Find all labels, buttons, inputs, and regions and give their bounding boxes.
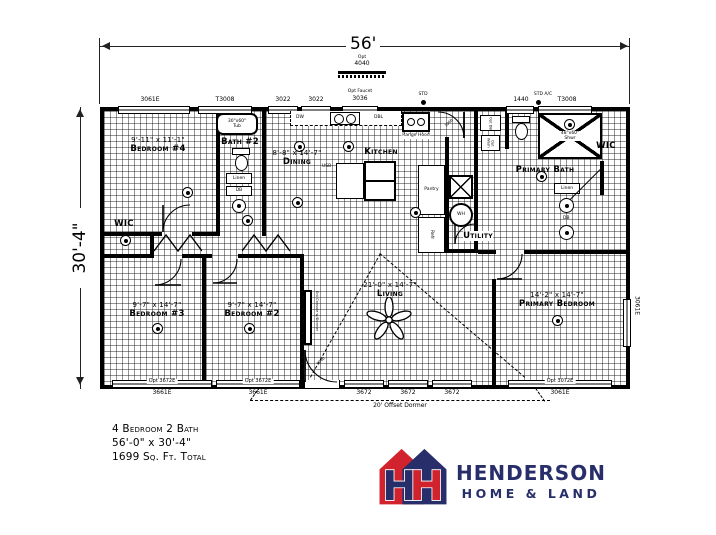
- window: [506, 106, 534, 114]
- room-dims: 9'-11" x 11'-1": [130, 136, 185, 144]
- ent-console-label: Ent Console w/Dormer: [314, 291, 318, 331]
- window-size-label: 3672: [444, 390, 459, 396]
- toilet-icon: [232, 148, 250, 155]
- bifold-door-icon: [242, 234, 290, 252]
- room-name: Bedroom #3: [129, 309, 184, 319]
- furnace-label: Furn: [442, 177, 447, 187]
- room-name: Living: [363, 289, 417, 299]
- window: [118, 106, 190, 114]
- wall: [104, 254, 154, 258]
- std-marker-icon: [421, 100, 426, 105]
- light-fixture-icon: [343, 141, 354, 152]
- room-name: Utility: [463, 231, 493, 241]
- wall: [202, 254, 206, 385]
- linen-cabinet: Linen: [226, 173, 252, 184]
- opt-window-ticks-icon: [338, 75, 386, 78]
- exterior-door-arc-icon: [437, 111, 465, 139]
- light-fixture-icon: [410, 207, 421, 218]
- opt-window-label: Opt 3672E: [147, 379, 178, 384]
- room-dims: 9'-7" x 14'-7": [129, 301, 184, 309]
- light-fixture-icon: [152, 323, 163, 334]
- room-dining: 8'-8" x 14'-7" Dining: [272, 149, 321, 167]
- dim-arrow-up-icon: [76, 105, 84, 117]
- kitchen-island: [364, 161, 396, 201]
- door-arc-icon: [154, 258, 182, 286]
- window-size-label: 3061E: [633, 296, 639, 315]
- window: [388, 380, 428, 388]
- light-fixture-icon: [242, 215, 253, 226]
- logo-monogram: H: [410, 462, 444, 508]
- opt-window-size-label: 4040: [354, 61, 369, 67]
- room-kitchen: Kitchen: [364, 147, 398, 157]
- db-cabinet: DB: [226, 186, 252, 196]
- dim-arrow-right-icon: [620, 42, 632, 50]
- pantry-cabinet: Pantry: [418, 165, 445, 215]
- bifold-door-icon: [154, 234, 202, 252]
- room-wic-right: WIC: [596, 141, 616, 151]
- light-fixture-icon: [559, 198, 574, 213]
- floor-plan-page: 56' 30'-4" Opt 4040 3061E T3008 3022 302…: [0, 0, 716, 535]
- door-arc-icon: [162, 204, 191, 233]
- top-dimension-label: 56': [346, 34, 380, 54]
- room-bath2: Bath #2: [221, 137, 259, 147]
- toilet-icon: [235, 155, 248, 171]
- std-ac-label: STD A/C: [534, 93, 552, 98]
- room-wic-left: WIC: [114, 219, 134, 229]
- light-fixture-icon: [120, 235, 131, 246]
- range-icon: [402, 112, 430, 132]
- room-bedroom4: 9'-11" x 11'-1" Bedroom #4: [130, 136, 185, 154]
- door-arc-icon: [212, 258, 238, 284]
- room-name: Kitchen: [364, 147, 398, 157]
- light-fixture-icon: [244, 323, 255, 334]
- wall: [262, 111, 266, 236]
- pantry-label: Pantry: [424, 187, 438, 192]
- linen-label: Linen: [233, 176, 245, 181]
- logo-brand-name: HENDERSON: [456, 461, 606, 485]
- wall: [505, 111, 509, 149]
- plan-summary: 4 Bedroom 2 Bath 56'-0" x 30'-4" 1699 Sq…: [112, 423, 206, 465]
- window: [432, 380, 472, 388]
- room-name: WIC: [596, 141, 616, 151]
- opt-wash-box: Opt Wash: [481, 135, 500, 151]
- room-primary-bath: Primary Bath: [516, 165, 575, 175]
- room-dims: 9'-7" x 14'-7": [224, 301, 279, 309]
- light-fixture-icon: [232, 199, 246, 213]
- summary-sqft: 1699 Sq. Ft. Total: [112, 451, 206, 465]
- room-dims: 21'-0" x 14'-7": [363, 281, 417, 289]
- dim-arrow-down-icon: [76, 377, 84, 389]
- light-fixture-icon: [182, 187, 193, 198]
- kitchen-sink-icon: [330, 112, 360, 125]
- room-utility: Utility: [463, 231, 493, 241]
- refrigerator: Refr: [418, 217, 445, 253]
- wh-label: WH: [457, 212, 465, 217]
- std-label: STD: [418, 93, 427, 98]
- light-fixture-icon: [552, 315, 563, 326]
- dim-arrow-left-icon: [98, 42, 110, 50]
- window-size-label: 3036: [352, 96, 367, 102]
- window-size-label: 3022: [275, 97, 290, 103]
- tub-label: Tub: [233, 124, 241, 129]
- opt-window-bar-icon: [338, 71, 386, 74]
- room-dims: 8'-8" x 14'-7": [272, 149, 321, 157]
- ceiling-fan-icon: [366, 297, 412, 343]
- wall: [492, 279, 496, 385]
- opt-db-box: Opt DB: [480, 115, 501, 131]
- window-size-label: 3661E: [152, 390, 171, 396]
- summary-beds-baths: 4 Bedroom 2 Bath: [112, 423, 206, 437]
- room-living: 21'-0" x 14'-7" Living: [363, 281, 417, 299]
- summary-size: 56'-0" x 30'-4": [112, 437, 206, 451]
- room-name: Bedroom #2: [224, 309, 279, 319]
- dbl-sink-label: DBL: [374, 116, 383, 121]
- room-primary-bedroom: 14'-2" x 14'-7" Primary Bedroom: [519, 291, 595, 309]
- henderson-logo-icon: H H: [378, 440, 448, 508]
- wall: [524, 250, 626, 254]
- std-ac-marker-icon: [536, 100, 541, 105]
- window-size-label: T3008: [558, 97, 577, 103]
- door-arc-icon: [496, 253, 523, 280]
- room-name: Primary Bedroom: [519, 299, 595, 309]
- room-bedroom2: 9'-7" x 14'-7" Bedroom #2: [224, 301, 279, 319]
- wall: [238, 254, 300, 258]
- ent-console: [304, 290, 312, 345]
- window: [623, 299, 631, 347]
- window-size-label: 3022: [308, 97, 323, 103]
- logo-tagline: HOME & LAND: [456, 486, 606, 501]
- shower-light-icon: [564, 119, 575, 130]
- room-dims: 14'-2" x 14'-7": [519, 291, 595, 299]
- window-size-label: 1440: [513, 97, 528, 103]
- wall: [478, 250, 496, 254]
- dormer-label: 20' Offset Dormer: [373, 403, 427, 409]
- linen-label: Linen: [561, 186, 573, 191]
- window-size-label: 3061E: [140, 97, 159, 103]
- floor-plan: Opt 3672E Opt 3672E Opt 3072E 9'-11" x 1…: [100, 107, 630, 389]
- toilet-icon: [515, 123, 528, 140]
- window-size-label: 3672: [356, 390, 371, 396]
- toilet-icon: [512, 116, 530, 123]
- opt-window-label: Opt 3672E: [243, 379, 274, 384]
- room-name: Bath #2: [221, 137, 259, 147]
- window-size-label: 3661E: [248, 390, 267, 396]
- dormer-baseline: [250, 400, 550, 401]
- refr-label: Refr: [429, 230, 434, 239]
- dishwasher-label: DW: [296, 116, 304, 121]
- usb-label: USB: [322, 165, 331, 170]
- wall: [600, 161, 604, 195]
- opt-window-label: Opt 3072E: [545, 379, 576, 384]
- db-label: DB: [236, 188, 243, 193]
- window-size-label: T3008: [216, 97, 235, 103]
- tub-icon: 30"x60" Tub: [216, 113, 258, 135]
- light-fixture-icon: [559, 225, 574, 240]
- island-table: [336, 163, 364, 199]
- room-name: Bedroom #4: [130, 144, 185, 154]
- furnace-icon: [449, 175, 473, 199]
- opt-db-label: Opt DB: [488, 117, 492, 130]
- front-door-arc-icon: [304, 349, 338, 383]
- room-name: Dining: [272, 157, 321, 167]
- db-label: DB: [563, 217, 570, 222]
- room-bedroom3: 9'-7" x 14'-7" Bedroom #3: [129, 301, 184, 319]
- window: [344, 380, 384, 388]
- wall: [182, 254, 212, 258]
- window-size-label: 3672: [400, 390, 415, 396]
- left-dimension-label: 30'-4": [70, 208, 90, 288]
- range-hood-label: Range Hood: [401, 134, 430, 139]
- shower-label: Shwr: [564, 136, 575, 141]
- opt-faucet-label: Opt Faucet: [348, 90, 372, 95]
- window-size-label: 3061E: [550, 390, 569, 396]
- light-fixture-icon: [292, 197, 303, 208]
- opt-wash-label: Opt Wash: [486, 136, 494, 150]
- room-name: Primary Bath: [516, 165, 575, 175]
- room-name: WIC: [114, 219, 134, 229]
